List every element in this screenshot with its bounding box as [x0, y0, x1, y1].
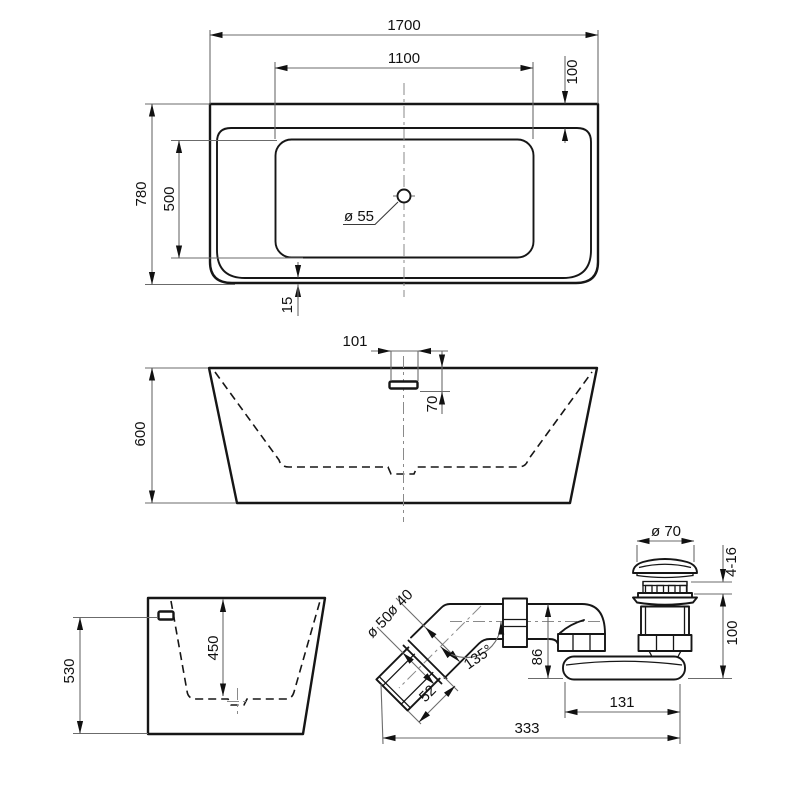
plug-stem-post [680, 586, 687, 594]
plug-skirt [633, 598, 697, 605]
dim-inner-depth: 450 [205, 635, 222, 660]
dim-drain-height: 100 [724, 620, 741, 645]
side-hidden-basin [171, 601, 320, 705]
trap-chamber [563, 657, 685, 680]
kit-centerline-angled [399, 606, 481, 688]
dim-elbow-angle: 135° [461, 641, 496, 673]
dim-cap-diameter: ø 70 [651, 523, 681, 540]
dim-kit-overall-length: 333 [514, 720, 539, 737]
plug-stem-post [657, 586, 664, 594]
dim-basin-width: 500 [161, 186, 178, 211]
plug-stem-post [646, 586, 653, 594]
dim-rear-ledge: 100 [564, 59, 581, 84]
drain-body-nut [639, 635, 692, 651]
dim-body-length: 131 [609, 694, 634, 711]
bathtub-technical-drawing: ø 55 1700 1100 100 780 500 15 [0, 0, 800, 800]
waste-kit-view: ø 70 4-16 100 86 ø 40 ø 50 52 135° [363, 523, 741, 744]
angled-pipe-upper [411, 604, 503, 638]
dim-overall-length: 1700 [387, 17, 420, 34]
dim-overflow-depth: 70 [424, 396, 441, 413]
side-view: 450 530 [61, 598, 325, 734]
drawing-canvas: ø 55 1700 1100 100 780 500 15 [0, 0, 800, 800]
pipe-union-nut [503, 599, 527, 648]
dim-overall-width: 780 [133, 181, 150, 206]
front-view: 101 70 600 [132, 333, 597, 522]
dim-overall-height: 600 [132, 421, 149, 446]
outlet-end-face [379, 677, 410, 708]
side-overflow-slot [159, 612, 174, 620]
drain-body [641, 607, 689, 636]
drain-hole [398, 190, 411, 203]
dim-basin-length: 1100 [388, 50, 420, 67]
top-view: ø 55 1700 1100 100 780 500 15 [133, 17, 598, 316]
trap-chamber-top-line [566, 661, 682, 665]
dim-overflow-height: 530 [61, 658, 78, 683]
dim-adjustment-range: 4-16 [723, 547, 740, 577]
trap-body [558, 634, 685, 680]
elbow-inner [527, 639, 558, 643]
dim-front-rim: 15 [279, 297, 296, 314]
overflow-slot [390, 382, 418, 389]
trap-inlet-nut [558, 634, 605, 651]
dim-overflow-offset: 101 [342, 333, 367, 350]
dim-drain-diameter: ø 55 [344, 208, 374, 225]
plug-assembly [633, 559, 697, 657]
elbow-outer [527, 604, 605, 634]
plug-stem-post [669, 586, 676, 594]
dim-trap-height: 86 [529, 649, 546, 666]
